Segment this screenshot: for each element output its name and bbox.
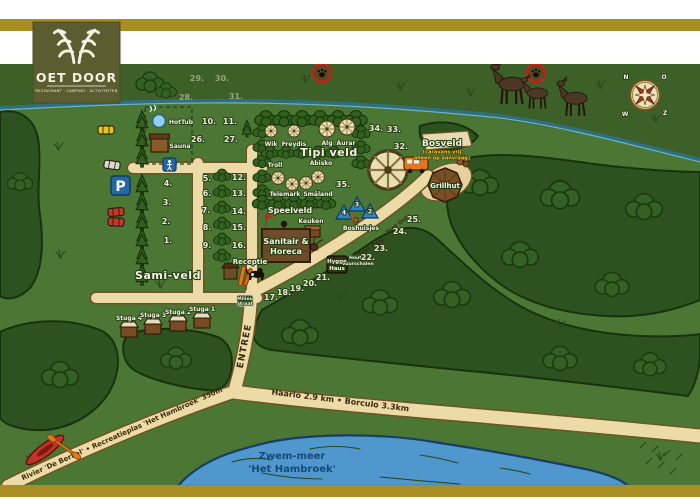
tipi-icon [339, 119, 355, 135]
pitch-number: 1. [164, 236, 173, 245]
compass-s: Z [663, 110, 668, 117]
parking-letter: P [115, 179, 125, 195]
pitch-number: 28. [179, 93, 193, 102]
lake-label-2: 'Het Hambroek' [248, 464, 335, 475]
tipi-icon [288, 125, 300, 137]
sauna-icon [150, 134, 170, 152]
area-label-bosveld: Bosveld [422, 139, 462, 149]
pitch-number: 24. [393, 227, 407, 236]
forest-left-edge [0, 111, 42, 298]
pitch-number: 11. [223, 117, 237, 126]
car-icon [104, 160, 121, 170]
bos-tent-number: 4 [342, 210, 346, 217]
stuga-label: Stuga 1 [189, 306, 215, 313]
pitch-number: 6. [203, 189, 212, 198]
pitch-number: 34. [369, 124, 383, 133]
pitch-number: 13. [232, 189, 246, 198]
tipi-name: Wik [265, 141, 279, 148]
pitch-number: 31. [229, 92, 243, 101]
pitch-number: 7. [202, 206, 211, 215]
stuga-label: Stuga 2 [165, 309, 191, 316]
event-tent-icon [369, 151, 407, 189]
tipi-name: Småland [303, 191, 332, 198]
bos-tent-number: 3 [355, 202, 359, 209]
pitch-number: 9. [203, 241, 212, 250]
pitch-number: 29. [190, 74, 204, 83]
parking-sign: P [111, 176, 130, 195]
pitch-number: 10. [202, 117, 216, 126]
pitch-number: 21. [316, 273, 330, 282]
campground-map-page: N O Z W P [0, 0, 700, 500]
pitch-number: 22. [361, 253, 375, 262]
logo-subtitle: RESTAURANT · CAMPING · ACTIVITEITEN [35, 89, 117, 93]
tipi-icon [312, 171, 325, 184]
stuga-label: Stuga 4 [116, 315, 142, 322]
tipi-icon [265, 125, 277, 137]
pitch-number: 3. [163, 198, 172, 207]
pitch-number: 30. [215, 74, 229, 83]
receptie-label: Receptie [233, 258, 268, 266]
pitch-number: 16. [232, 241, 246, 250]
car-icon [108, 218, 124, 227]
tipi-icon [319, 121, 335, 137]
pitch-number: 23. [374, 244, 388, 253]
tipi-name: Telemark [270, 191, 302, 198]
grillhut-label: Grillhut [430, 182, 460, 190]
bos-tent-number: 2 [368, 209, 372, 216]
pitch-number: 27. [224, 135, 238, 144]
map-canvas: N O Z W P [0, 0, 700, 500]
gold-band-bottom [0, 485, 700, 497]
stuga-cabin-icon [144, 319, 162, 334]
pitch-number: 15. [232, 223, 246, 232]
pitch-number: 32. [394, 142, 408, 151]
area-label-boshuisjes: Boshuisjes [343, 225, 380, 232]
map-area: N O Z W P [0, 46, 700, 486]
bosveld-note-2: alleen op aanvraag) [414, 156, 470, 162]
compass-n: N [623, 74, 628, 81]
pitch-number: 35. [336, 180, 350, 189]
logo-title: OET DOOR [36, 70, 117, 85]
sanitair-label-1: Sanitair & [263, 237, 308, 246]
paw-badge-icon [527, 64, 545, 82]
logo-box: OET DOOR RESTAURANT · CAMPING · ACTIVITE… [33, 22, 120, 103]
pitch-number: 2. [162, 217, 171, 226]
pitch-number: 12. [232, 173, 246, 182]
keuken-label: Keuken [298, 218, 323, 225]
stuga-cabin-icon [169, 316, 187, 331]
pitch-number: 5. [203, 174, 212, 183]
car-icon [108, 207, 125, 216]
compass-e: O [661, 74, 666, 81]
area-label-tipi-veld: Tipi veld [300, 146, 358, 159]
hottub-label: HotTub [169, 119, 194, 126]
compass-w: W [622, 111, 629, 118]
car-icon [98, 126, 114, 134]
tipi-icon [286, 178, 299, 191]
stuga-label: Stuga 3 [140, 312, 166, 319]
pitch-number: 25. [407, 215, 421, 224]
pedestrian-sign-icon [163, 158, 176, 171]
stuga-cabin-icon [120, 322, 138, 337]
area-label-sami-veld: Sami-veld [135, 269, 201, 282]
hottub-icon [153, 115, 166, 128]
sanitair-label-2: Horeca [270, 247, 302, 256]
tipi-icon [272, 172, 285, 185]
tipi-icon [300, 177, 313, 190]
stuga-cabin-icon [193, 313, 211, 328]
pitch-number: 4. [164, 179, 173, 188]
pitch-number: 33. [387, 125, 401, 134]
milieu-label-2: straat [237, 301, 253, 307]
pitch-number: 14. [232, 207, 246, 216]
sauna-label: Sauna [170, 143, 191, 150]
tipi-name: Abisko [310, 160, 333, 167]
paw-badge-icon [313, 64, 331, 82]
tipi-name: Troll [268, 162, 283, 169]
area-label-speelveld: Speelveld [268, 206, 312, 215]
pitch-number: 8. [203, 223, 212, 232]
lake-label-1: Zwem-meer [259, 451, 326, 462]
pitch-number: 26. [191, 135, 205, 144]
milieu-straat-sign: Milieu straat [237, 295, 254, 307]
